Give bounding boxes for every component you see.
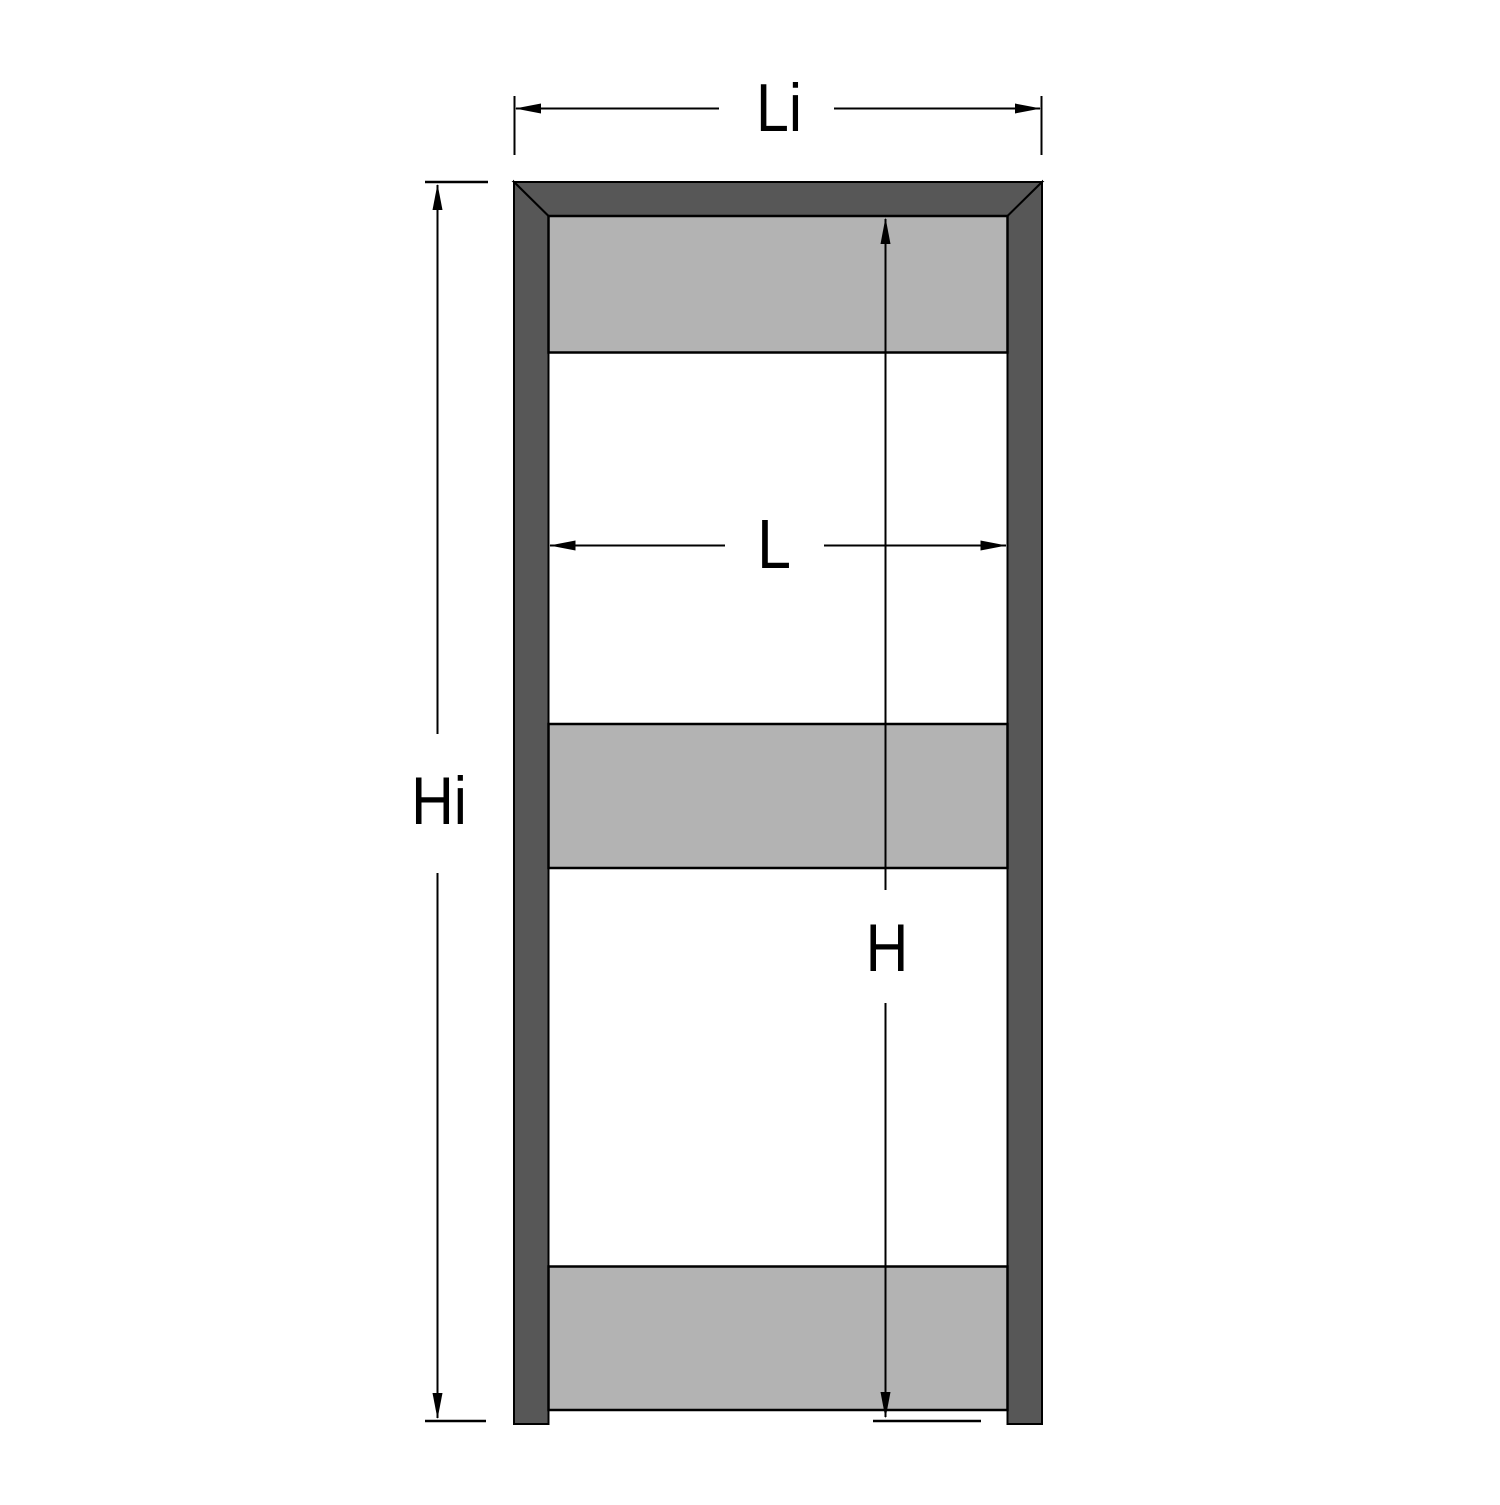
svg-text:Hi: Hi <box>411 762 467 839</box>
svg-text:Li: Li <box>756 69 802 146</box>
svg-text:L: L <box>757 505 791 583</box>
svg-text:H: H <box>866 909 909 986</box>
